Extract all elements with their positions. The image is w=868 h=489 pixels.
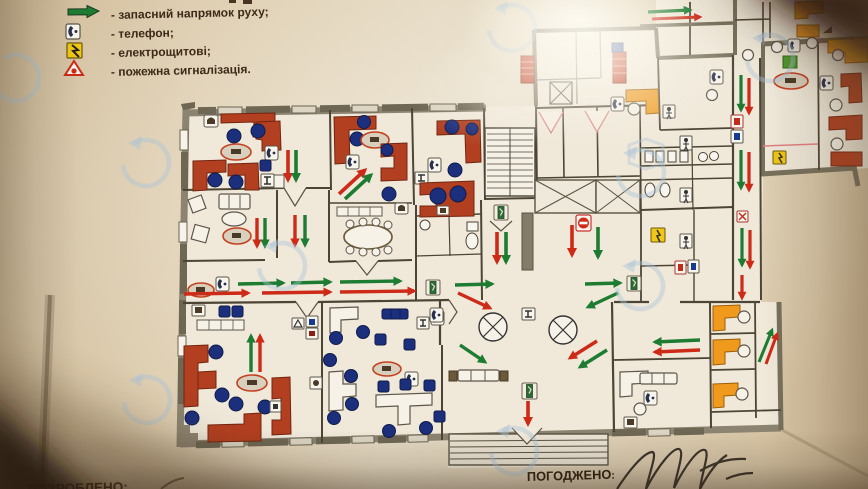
svg-text:- електрощитові;: - електрощитові; <box>111 44 211 60</box>
svg-text:- пожежна сигналізація.: - пожежна сигналізація. <box>111 62 251 79</box>
svg-text:ПОГОДЖЕНО:: ПОГОДЖЕНО: <box>527 467 615 484</box>
svg-text:РОЗРОБЛЕНО:: РОЗРОБЛЕНО: <box>28 479 128 489</box>
svg-text:- телефон;: - телефон; <box>111 26 174 41</box>
svg-text:- запасний напрямок руху;: - запасний напрямок руху; <box>111 5 269 22</box>
